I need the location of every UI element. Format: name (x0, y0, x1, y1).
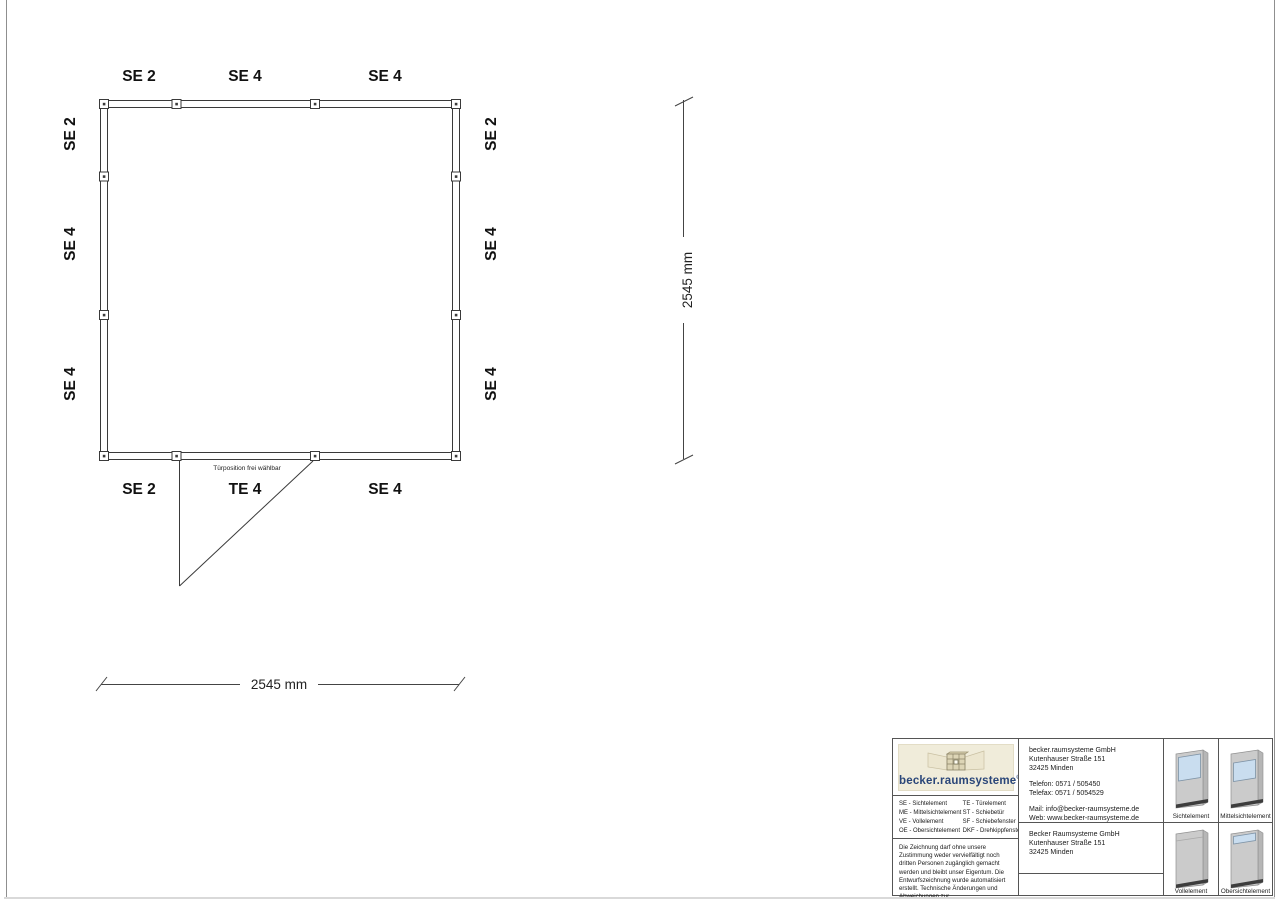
legend-item: ST - Schiebetür (963, 809, 1018, 818)
customer-city: 32425 Minden (1029, 848, 1163, 857)
manufacturer-street: Kutenhauser Straße 151 (1029, 755, 1163, 764)
empty-cell (1019, 874, 1163, 897)
panel-label-left-2: SE 4 (62, 227, 79, 261)
legend-item: SE - Sichtelement (899, 800, 961, 809)
manufacturer-phone: Telefon: 0571 / 505450 (1029, 780, 1163, 789)
titleblock-middle-column: becker.raumsysteme GmbH Kutenhauser Stra… (1019, 739, 1164, 895)
company-logo: becker.raumsysteme® (898, 744, 1014, 791)
legend-item: DKF - Drehkippfenster (963, 827, 1018, 836)
logo-cell: becker.raumsysteme® (893, 739, 1018, 796)
panel-label-right-3: SE 4 (483, 367, 500, 401)
registered-mark: ® (1016, 775, 1018, 781)
customer-cell: Becker Raumsysteme GmbH Kutenhauser Stra… (1019, 823, 1163, 874)
element-cell-mittelsichtelement: Mittelsichtelement (1219, 739, 1272, 823)
panel-label-left-3: SE 4 (62, 367, 79, 401)
legend-item: VE - Vollelement (899, 818, 961, 827)
titleblock-element-column-2: Mittelsichtelement Obersichtelement (1219, 739, 1272, 895)
element-label: Mittelsichtelement (1219, 813, 1272, 820)
panel-label-bottom-3: SE 4 (368, 481, 402, 498)
element-cell-sichtelement: Sichtelement (1164, 739, 1218, 823)
sheet-shadow (4, 897, 1275, 899)
mittelsichtelement-icon (1225, 747, 1267, 811)
legend-item: TE - Türelement (963, 800, 1018, 809)
titleblock-left-column: becker.raumsysteme® SE - Sichtelement ME… (893, 739, 1019, 895)
floor-plan: Türposition frei wählbar SE 2 SE 4 SE 4 … (0, 0, 780, 720)
legend-cell: SE - Sichtelement ME - Mittelsichtelemen… (893, 796, 1018, 839)
legend-item: OE - Obersichtelement (899, 827, 961, 836)
panel-label-right-1: SE 2 (483, 117, 500, 151)
disclaimer-text: Die Zeichnung darf ohne unsere Zustimmun… (893, 839, 1018, 897)
panel-label-top-1: SE 2 (122, 68, 156, 85)
sichtelement-icon (1170, 747, 1212, 811)
obersichtelement-icon (1225, 827, 1267, 891)
wall-outline-outer (101, 101, 460, 460)
drawing-sheet: Türposition frei wählbar SE 2 SE 4 SE 4 … (0, 0, 1280, 905)
panel-label-top-2: SE 4 (228, 68, 262, 85)
dimension-vertical: 2545 mm (675, 97, 695, 464)
titleblock-element-column-1: Sichtelement Vollelement (1164, 739, 1219, 895)
panel-label-bottom-2: TE 4 (229, 481, 262, 498)
legend-item: ME - Mittelsichtelement (899, 809, 961, 818)
panel-label-right-2: SE 4 (483, 227, 500, 261)
legend-item: SF - Schiebefenster (963, 818, 1018, 827)
legend-column-2: TE - Türelement ST - Schiebetür SF - Sch… (963, 800, 1018, 836)
vollelement-icon (1170, 827, 1212, 891)
cabin-illustration-icon (927, 748, 985, 772)
element-cell-obersichtelement: Obersichtelement (1219, 823, 1272, 897)
element-label: Vollelement (1164, 888, 1218, 895)
element-label: Obersichtelement (1219, 888, 1272, 895)
manufacturer-contact-cell: becker.raumsysteme GmbH Kutenhauser Stra… (1019, 739, 1163, 823)
door-note: Türposition frei wählbar (213, 465, 281, 472)
title-block: becker.raumsysteme® SE - Sichtelement ME… (892, 738, 1273, 896)
element-label: Sichtelement (1164, 813, 1218, 820)
manufacturer-fax: Telefax: 0571 / 5054529 (1029, 789, 1163, 798)
customer-street: Kutenhauser Straße 151 (1029, 839, 1163, 848)
dimension-horizontal: 2545 mm (96, 677, 465, 692)
legend-column-1: SE - Sichtelement ME - Mittelsichtelemen… (899, 800, 961, 836)
customer-name: Becker Raumsysteme GmbH (1029, 830, 1163, 839)
manufacturer-web: Web: www.becker-raumsysteme.de (1029, 814, 1163, 823)
disclaimer-cell: Die Zeichnung darf ohne unsere Zustimmun… (893, 839, 1018, 897)
manufacturer-city: 32425 Minden (1029, 764, 1163, 773)
element-cell-vollelement: Vollelement (1164, 823, 1218, 897)
manufacturer-mail: Mail: info@becker-raumsysteme.de (1029, 805, 1163, 814)
logo-wordmark-text: becker.raumsysteme (899, 775, 1016, 787)
dimension-vertical-label: 2545 mm (680, 252, 695, 308)
panel-label-bottom-1: SE 2 (122, 481, 156, 498)
panel-label-left-1: SE 2 (62, 117, 79, 151)
door-swing (180, 461, 314, 587)
dimension-horizontal-label: 2545 mm (251, 677, 307, 692)
logo-wordmark: becker.raumsysteme® (899, 775, 1013, 787)
panel-label-top-3: SE 4 (368, 68, 402, 85)
manufacturer-name: becker.raumsysteme GmbH (1029, 746, 1163, 755)
